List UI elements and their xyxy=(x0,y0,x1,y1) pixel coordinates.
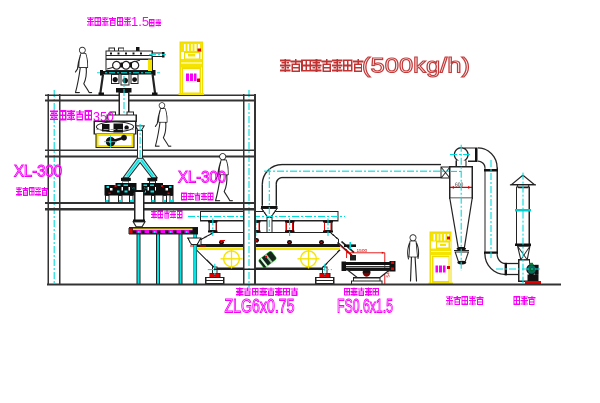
svg-text:1500: 1500 xyxy=(357,248,368,254)
svg-text:XL-300: XL-300 xyxy=(14,163,62,181)
svg-text:350: 350 xyxy=(93,110,114,124)
svg-text:(500kg/h): (500kg/h) xyxy=(362,54,470,78)
svg-text:600: 600 xyxy=(455,182,464,188)
svg-text:XL-300: XL-300 xyxy=(178,169,226,187)
svg-text:1.5: 1.5 xyxy=(131,14,149,29)
svg-text:ZLG6x0.75: ZLG6x0.75 xyxy=(225,296,295,318)
svg-text:FS0.6x1.5: FS0.6x1.5 xyxy=(337,296,393,318)
